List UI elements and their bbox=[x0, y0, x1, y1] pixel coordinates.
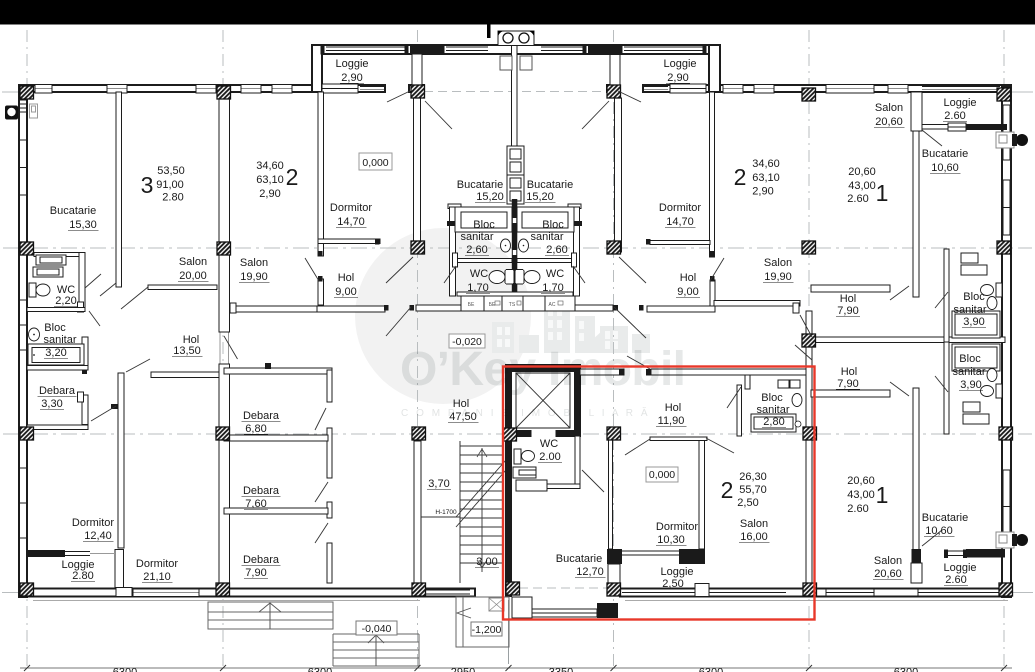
svg-text:26,30: 26,30 bbox=[739, 471, 767, 483]
svg-text:34,60: 34,60 bbox=[752, 158, 780, 170]
svg-text:21,10: 21,10 bbox=[143, 571, 171, 583]
svg-text:20,60: 20,60 bbox=[875, 116, 903, 128]
svg-text:2,80: 2,80 bbox=[763, 416, 784, 428]
svg-text:3,90: 3,90 bbox=[960, 379, 981, 391]
svg-text:14,70: 14,70 bbox=[666, 216, 694, 228]
svg-text:2,60: 2,60 bbox=[466, 244, 487, 256]
svg-text:2.80: 2.80 bbox=[72, 570, 93, 582]
svg-text:-0,040: -0,040 bbox=[362, 623, 392, 635]
svg-text:2: 2 bbox=[286, 164, 299, 190]
svg-text:6300: 6300 bbox=[308, 667, 332, 672]
svg-text:Loggie: Loggie bbox=[335, 58, 368, 70]
svg-text:AC: AC bbox=[549, 302, 556, 308]
svg-text:Dormitor: Dormitor bbox=[136, 558, 179, 570]
svg-text:Bloc: Bloc bbox=[473, 219, 495, 231]
svg-text:2.60: 2.60 bbox=[847, 193, 868, 205]
svg-text:1,70: 1,70 bbox=[542, 282, 563, 294]
svg-text:15,30: 15,30 bbox=[69, 219, 97, 231]
svg-text:55,70: 55,70 bbox=[739, 484, 767, 496]
svg-text:Debara: Debara bbox=[243, 485, 280, 497]
svg-text:2.60: 2.60 bbox=[944, 110, 965, 122]
svg-text:43,00: 43,00 bbox=[847, 489, 875, 501]
svg-text:0,000: 0,000 bbox=[362, 157, 388, 169]
svg-text:Bloc: Bloc bbox=[963, 291, 985, 303]
svg-text:Debara: Debara bbox=[243, 554, 280, 566]
svg-text:sanitar: sanitar bbox=[953, 304, 986, 316]
svg-text:15,20: 15,20 bbox=[526, 191, 554, 203]
svg-text:Loggie: Loggie bbox=[943, 562, 976, 574]
svg-text:Dormitor: Dormitor bbox=[659, 202, 702, 214]
svg-text:63,10: 63,10 bbox=[256, 174, 284, 186]
svg-text:53,50: 53,50 bbox=[157, 165, 185, 177]
svg-text:2,50: 2,50 bbox=[662, 578, 683, 590]
svg-text:3350: 3350 bbox=[549, 667, 573, 672]
svg-text:Hol: Hol bbox=[841, 366, 858, 378]
svg-text:6300: 6300 bbox=[113, 667, 137, 672]
svg-text:63,10: 63,10 bbox=[752, 172, 780, 184]
svg-text:16,00: 16,00 bbox=[740, 531, 768, 543]
svg-text:2.60: 2.60 bbox=[847, 503, 868, 515]
svg-text:Bucatarie: Bucatarie bbox=[922, 148, 968, 160]
svg-text:15,20: 15,20 bbox=[476, 191, 504, 203]
svg-text:Loggie: Loggie bbox=[943, 97, 976, 109]
svg-text:Hol: Hol bbox=[338, 272, 355, 284]
svg-text:C O M P A N I E I M O B I L I: C O M P A N I E I M O B I L I A R Ă bbox=[401, 406, 653, 419]
svg-text:Dormitor: Dormitor bbox=[72, 517, 115, 529]
svg-text:10,60: 10,60 bbox=[925, 525, 953, 537]
svg-text:Salon: Salon bbox=[179, 256, 207, 268]
svg-text:3,90: 3,90 bbox=[963, 316, 984, 328]
svg-text:Salon: Salon bbox=[874, 555, 902, 567]
svg-text:20,60: 20,60 bbox=[848, 166, 876, 178]
svg-text:sanitar: sanitar bbox=[460, 231, 493, 243]
svg-text:sanitar: sanitar bbox=[43, 334, 76, 346]
svg-text:12,70: 12,70 bbox=[576, 566, 604, 578]
svg-text:9,00: 9,00 bbox=[335, 286, 356, 298]
svg-text:34,60: 34,60 bbox=[256, 160, 284, 172]
svg-text:2.80: 2.80 bbox=[162, 192, 183, 204]
svg-text:Bucatarie: Bucatarie bbox=[922, 512, 968, 524]
svg-text:Hol: Hol bbox=[840, 293, 857, 305]
svg-text:20,60: 20,60 bbox=[874, 568, 902, 580]
svg-text:1,70: 1,70 bbox=[467, 282, 488, 294]
svg-text:2,90: 2,90 bbox=[667, 72, 688, 84]
svg-text:Debara: Debara bbox=[39, 385, 76, 397]
svg-text:7,60: 7,60 bbox=[245, 498, 266, 510]
svg-text:1: 1 bbox=[876, 180, 889, 206]
svg-text:Dormitor: Dormitor bbox=[330, 202, 373, 214]
svg-text:7,90: 7,90 bbox=[837, 305, 858, 317]
svg-text:3: 3 bbox=[141, 172, 154, 198]
svg-text:Bloc: Bloc bbox=[44, 322, 66, 334]
svg-text:Hol: Hol bbox=[665, 402, 682, 414]
svg-text:2,60: 2,60 bbox=[546, 244, 567, 256]
svg-text:10,60: 10,60 bbox=[931, 162, 959, 174]
svg-text:WC: WC bbox=[540, 438, 558, 450]
svg-text:2,20: 2,20 bbox=[55, 295, 76, 307]
svg-text:20,60: 20,60 bbox=[847, 475, 875, 487]
svg-text:20,00: 20,00 bbox=[179, 270, 207, 282]
svg-text:2: 2 bbox=[721, 477, 734, 503]
svg-text:7,90: 7,90 bbox=[245, 567, 266, 579]
svg-text:Salon: Salon bbox=[875, 102, 903, 114]
svg-text:14,70: 14,70 bbox=[337, 216, 365, 228]
svg-text:7,90: 7,90 bbox=[837, 378, 858, 390]
svg-text:H-1700: H-1700 bbox=[435, 509, 457, 516]
svg-text:6300: 6300 bbox=[699, 667, 723, 672]
svg-text:-1,200: -1,200 bbox=[472, 624, 502, 636]
svg-text:2,50: 2,50 bbox=[737, 497, 758, 509]
svg-text:2,90: 2,90 bbox=[752, 186, 773, 198]
svg-text:Bloc: Bloc bbox=[542, 219, 564, 231]
svg-text:0,000: 0,000 bbox=[649, 469, 675, 481]
svg-text:19,90: 19,90 bbox=[764, 271, 792, 283]
svg-text:91,00: 91,00 bbox=[156, 179, 184, 191]
svg-text:3,30: 3,30 bbox=[41, 398, 62, 410]
svg-text:6300: 6300 bbox=[894, 667, 918, 672]
svg-text:12,40: 12,40 bbox=[84, 530, 112, 542]
svg-text:2950: 2950 bbox=[451, 667, 475, 672]
svg-text:2,90: 2,90 bbox=[341, 72, 362, 84]
svg-text:19,90: 19,90 bbox=[240, 271, 268, 283]
svg-text:Loggie: Loggie bbox=[663, 58, 696, 70]
svg-text:sanitar: sanitar bbox=[530, 231, 563, 243]
svg-text:WC: WC bbox=[546, 268, 564, 280]
svg-text:9,00: 9,00 bbox=[677, 286, 698, 298]
svg-text:БЕ: БЕ bbox=[468, 302, 475, 308]
svg-text:Bucatarie: Bucatarie bbox=[457, 179, 503, 191]
svg-text:3.00: 3.00 bbox=[476, 556, 497, 568]
svg-text:11,90: 11,90 bbox=[658, 415, 685, 427]
svg-text:2: 2 bbox=[734, 164, 747, 190]
svg-text:Bloc: Bloc bbox=[761, 392, 783, 404]
svg-text:1: 1 bbox=[876, 482, 889, 508]
svg-text:Salon: Salon bbox=[740, 518, 768, 530]
svg-text:13,50: 13,50 bbox=[173, 345, 201, 357]
svg-text:Bucatarie: Bucatarie bbox=[50, 205, 96, 217]
svg-text:3,20: 3,20 bbox=[45, 347, 66, 359]
svg-text:2,90: 2,90 bbox=[259, 188, 280, 200]
svg-text:Loggie: Loggie bbox=[660, 566, 693, 578]
svg-text:sanitar: sanitar bbox=[756, 404, 789, 416]
svg-text:Debara: Debara bbox=[243, 410, 280, 422]
svg-text:WC: WC bbox=[470, 268, 488, 280]
svg-text:43,00: 43,00 bbox=[848, 180, 876, 192]
svg-text:Bucatarie: Bucatarie bbox=[527, 179, 573, 191]
svg-text:Dormitor: Dormitor bbox=[656, 521, 699, 533]
svg-text:Bloc: Bloc bbox=[959, 353, 981, 365]
svg-text:3,70: 3,70 bbox=[428, 478, 449, 490]
svg-text:2.00: 2.00 bbox=[539, 451, 560, 463]
svg-text:sanitar: sanitar bbox=[952, 366, 985, 378]
svg-text:6,80: 6,80 bbox=[245, 423, 266, 435]
svg-text:2.60: 2.60 bbox=[945, 574, 966, 586]
svg-text:Salon: Salon bbox=[240, 257, 268, 269]
svg-text:Salon: Salon bbox=[764, 257, 792, 269]
svg-text:Bucatarie: Bucatarie bbox=[556, 553, 602, 565]
svg-text:10,30: 10,30 bbox=[657, 534, 685, 546]
svg-text:O’Key Imobil: O’Key Imobil bbox=[400, 343, 686, 396]
svg-text:Hol: Hol bbox=[680, 272, 697, 284]
svg-text:TS: TS bbox=[509, 302, 516, 308]
